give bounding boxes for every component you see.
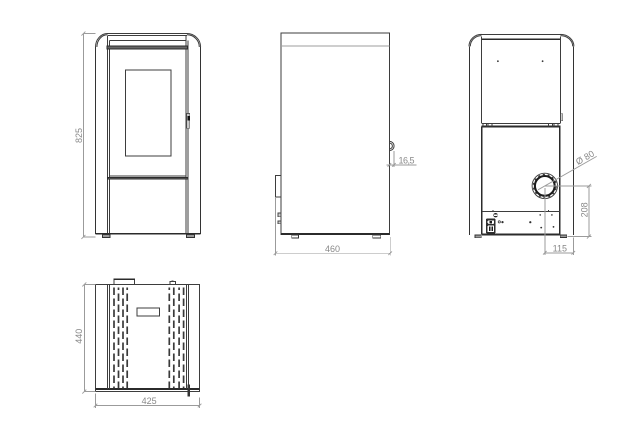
svg-text:425: 425 bbox=[142, 396, 157, 406]
svg-text:825: 825 bbox=[74, 128, 84, 143]
svg-text:16,5: 16,5 bbox=[399, 155, 415, 165]
svg-text:208: 208 bbox=[580, 202, 590, 217]
svg-text:460: 460 bbox=[325, 244, 340, 254]
svg-text:115: 115 bbox=[553, 244, 567, 254]
svg-text:440: 440 bbox=[74, 329, 84, 344]
